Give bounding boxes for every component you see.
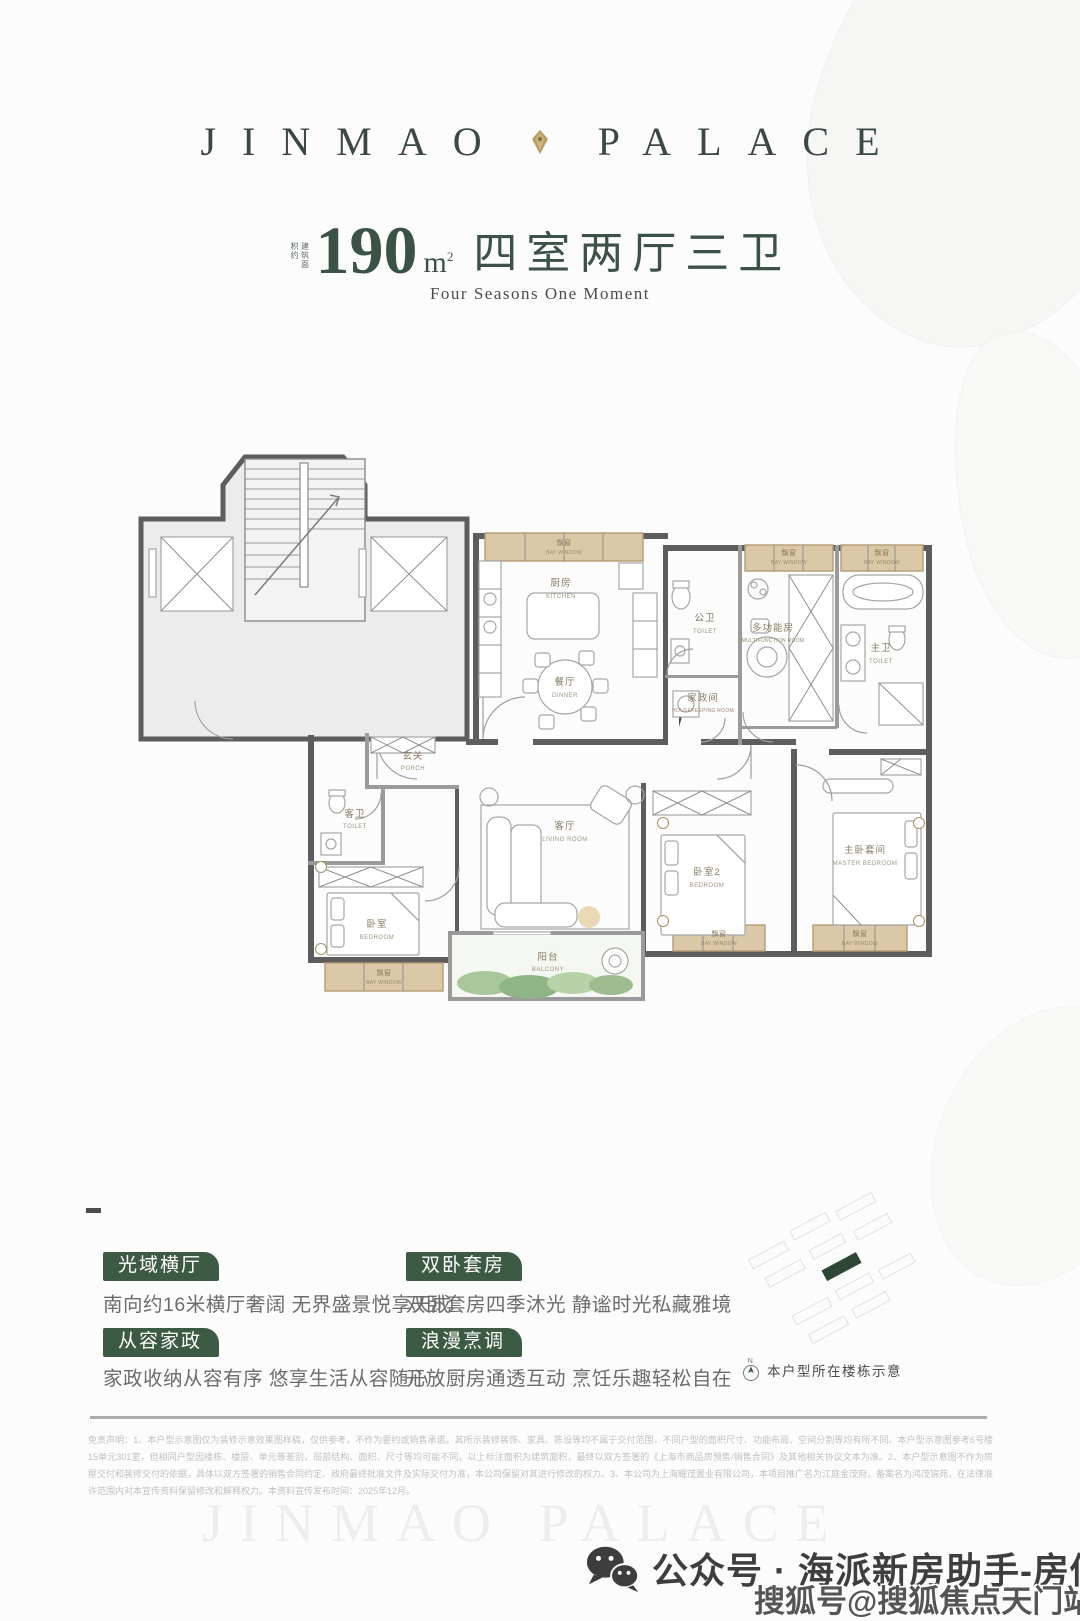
room-label-baywindow-en: BAY WINDOW <box>842 941 878 947</box>
feature-text-3: 家政收纳从容有序 悠享生活从容随心 <box>103 1362 429 1391</box>
room-label-guest-toilet-en: TOILET <box>343 824 367 830</box>
room-label-baywindow-en: BAY WINDOW <box>771 560 807 566</box>
feature-badge-3: 从容家政 <box>103 1328 219 1357</box>
room-label-baywindow-zh: 飘窗 <box>853 929 868 938</box>
locator-caption: N 本户型所在楼栋示意 <box>742 1356 902 1384</box>
feature-badge-2: 双卧套房 <box>406 1252 522 1281</box>
sohu-account-label: 搜狐号@搜狐焦点天门站 <box>754 1576 1080 1621</box>
feature-text-4: 开放厨房通透互动 烹饪乐趣轻松自在 <box>406 1362 732 1391</box>
room-label-living-en: LIVING ROOM <box>542 837 588 843</box>
room-label-multifunction-en: MULTIFUNCTION ROOM <box>742 638 805 644</box>
room-label-baywindow-en: BAY WINDOW <box>366 980 402 986</box>
room-label-master-toilet-zh: 主卫 <box>870 642 891 654</box>
room-label-multifunction-zh: 多功能房 <box>752 622 794 634</box>
room-label-baywindow-en: BAY WINDOW <box>864 560 900 566</box>
feature-badge-1: 光域横厅 <box>103 1252 219 1281</box>
feature-text-1: 南向约16米横厅奢阔 无界盛景悦享天成 <box>103 1288 452 1317</box>
building-locator-map <box>735 1190 945 1350</box>
wechat-icon <box>584 1542 642 1594</box>
decorative-petal <box>925 317 1080 675</box>
brand-header: JINMAO PALACE <box>0 118 1080 165</box>
room-label-baywindow-zh: 飘窗 <box>782 548 797 557</box>
room-label-balcony-zh: 阳台 <box>537 951 558 963</box>
area-number: 190 <box>315 222 417 280</box>
compass-icon: N <box>742 1356 760 1384</box>
feature-badge-4: 浪漫烹调 <box>406 1328 522 1357</box>
floor-plan: 飘窗 BAY WINDOW 飘窗 BAY WINDOW 飘窗 BAY WINDO… <box>133 443 945 1043</box>
room-label-bedroom-zh: 卧室 <box>366 918 387 930</box>
room-label-baywindow-zh: 飘窗 <box>557 538 572 547</box>
section-dash <box>86 1208 101 1213</box>
room-label-baywindow-zh: 飘窗 <box>875 548 890 557</box>
area-unit: m2 <box>423 248 453 278</box>
room-label-baywindow-zh: 飘窗 <box>377 968 392 977</box>
locator-caption-text: 本户型所在楼栋示意 <box>767 1360 902 1380</box>
room-label-kitchen-en: KITCHEN <box>546 594 576 600</box>
room-label-bedroom2-en: BEDROOM <box>690 883 725 889</box>
layout-title: 四室两厅三卫 <box>473 232 791 276</box>
disclaimer-text: 免责声明：1、本户型示意图仅为装修示意效果图样稿，仅供参考，不作为要约或销售承诺… <box>88 1432 993 1500</box>
area-prefix: 建筑面积约 <box>289 242 310 272</box>
room-label-baywindow-zh: 飘窗 <box>712 929 727 938</box>
room-label-kitchen-zh: 厨房 <box>550 577 571 589</box>
highlighted-building <box>822 1253 861 1281</box>
unit-title: 建筑面积约 190 m2 四室两厅三卫 <box>0 222 1080 280</box>
room-label-public-toilet-zh: 公卫 <box>694 613 715 624</box>
elevator-right <box>359 537 447 611</box>
room-label-master-bedroom-en: MASTER BEDROOM <box>833 861 898 867</box>
room-label-porch-en: PORCH <box>401 766 425 772</box>
room-label-public-toilet-en: TOILET <box>693 629 717 635</box>
svg-text:N: N <box>748 1358 755 1365</box>
room-label-bedroom2-zh: 卧室2 <box>693 866 720 878</box>
room-label-porch-zh: 玄关 <box>402 750 423 762</box>
room-label-housekeeping-zh: 家政间 <box>687 692 719 704</box>
room-label-guest-toilet-zh: 客卫 <box>344 808 365 820</box>
room-label-dinner-en: DINNER <box>552 693 578 699</box>
brand-emblem-icon <box>528 129 552 155</box>
title-subtitle: Four Seasons One Moment <box>0 284 1080 304</box>
room-label-baywindow-en: BAY WINDOW <box>546 550 582 556</box>
disclaimer-divider <box>90 1416 987 1419</box>
brand-name-right: PALACE <box>572 118 906 165</box>
elevator-left <box>149 537 233 611</box>
room-label-bedroom-en: BEDROOM <box>360 935 395 941</box>
room-label-master-toilet-en: TOILET <box>869 659 893 665</box>
room-label-balcony-en: BALCONY <box>532 967 564 973</box>
room-label-living-zh: 客厅 <box>554 820 575 832</box>
room-label-housekeeping-en: HOUSEKEEPING ROOM <box>672 708 734 714</box>
feature-text-2: 双卧套房四季沐光 静谧时光私藏雅境 <box>406 1288 732 1317</box>
room-label-master-bedroom-zh: 主卧套间 <box>844 844 886 856</box>
room-label-baywindow-en: BAY WINDOW <box>701 941 737 947</box>
brand-name-left: JINMAO <box>174 118 507 165</box>
room-label-dinner-zh: 餐厅 <box>554 676 575 688</box>
core-area <box>141 457 467 779</box>
